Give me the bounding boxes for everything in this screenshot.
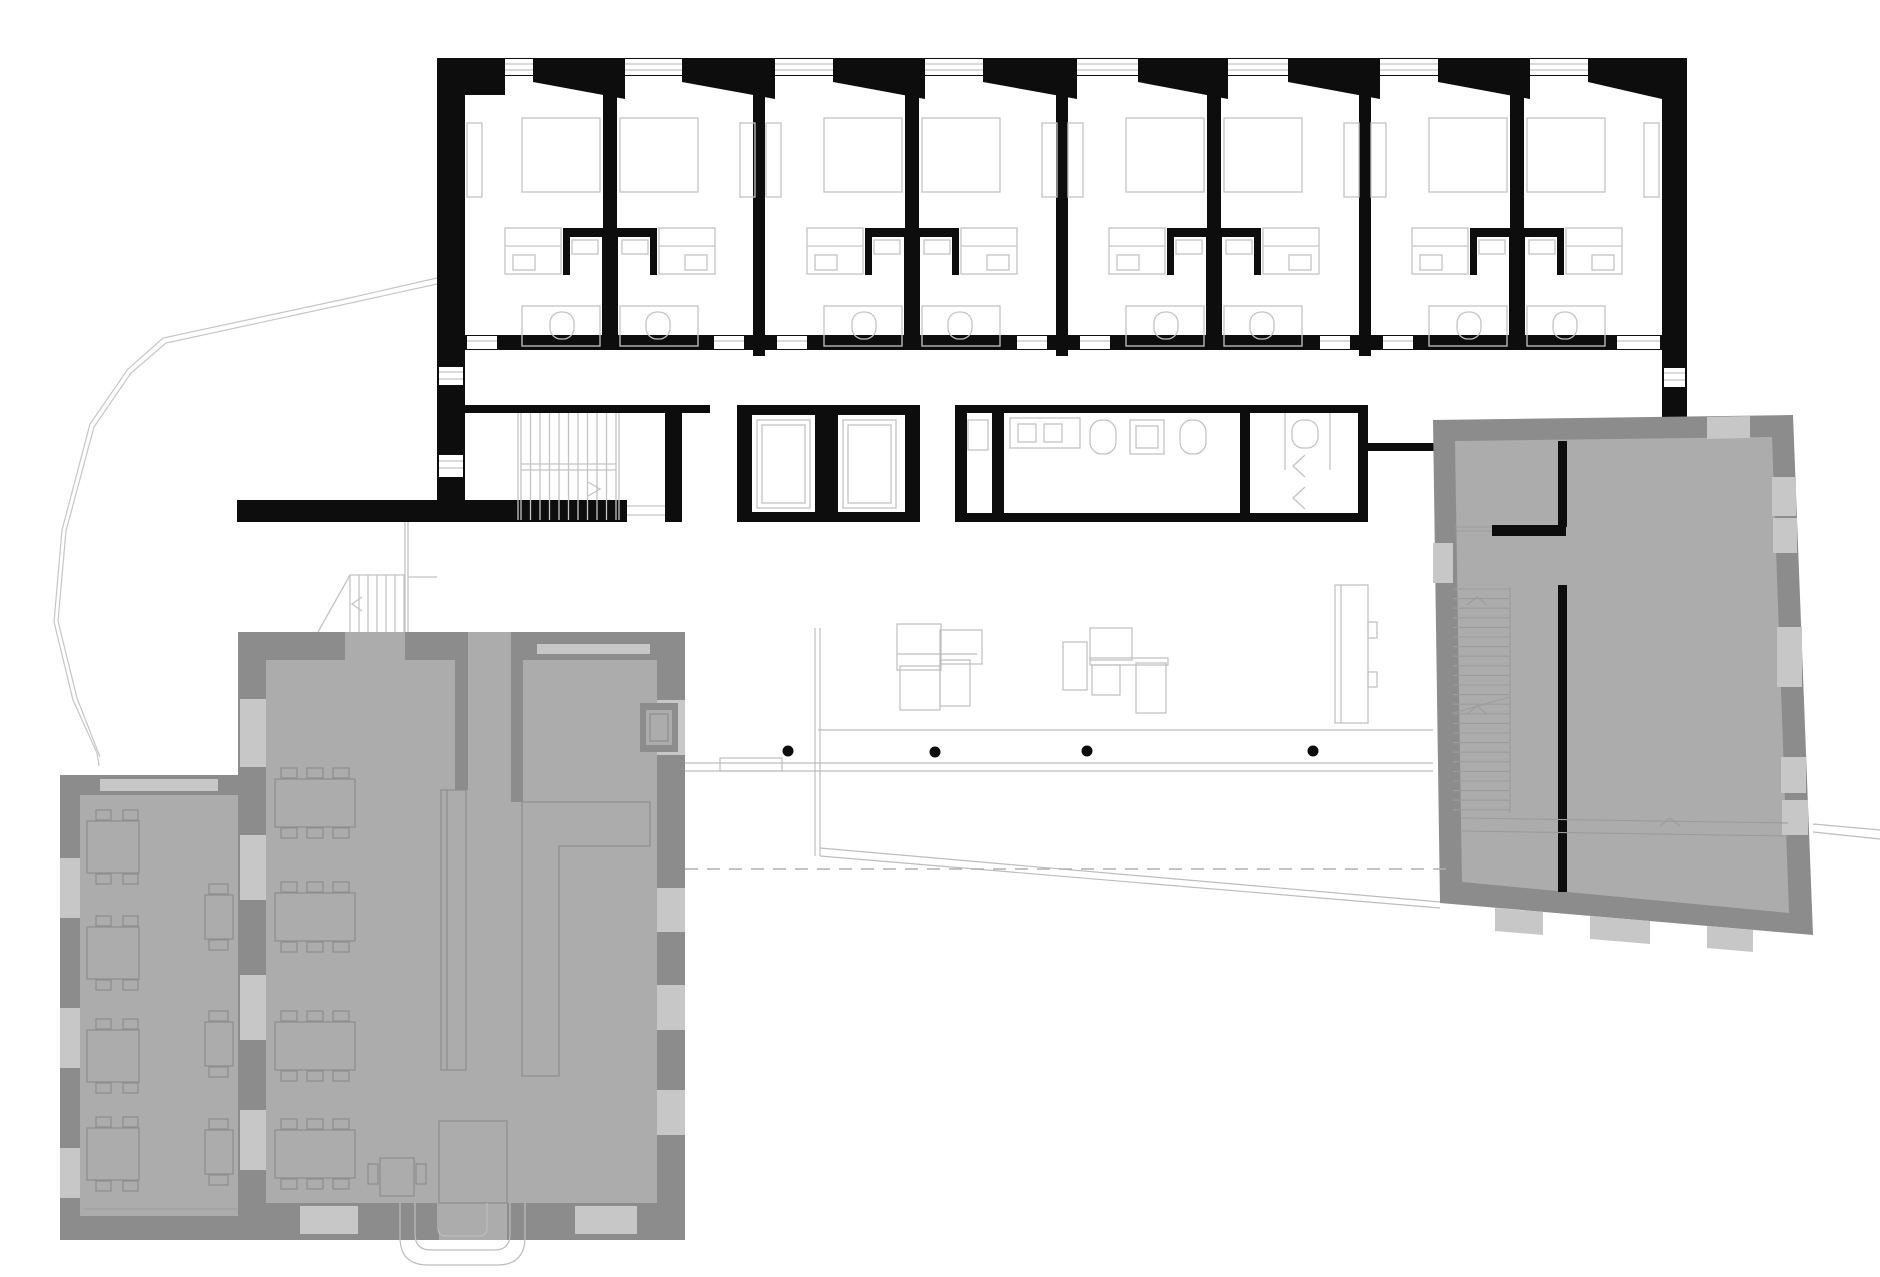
stair-direction-arrow	[588, 482, 600, 496]
service-band	[237, 405, 1435, 522]
floor-plan-canvas	[0, 0, 1880, 1277]
stove	[640, 703, 678, 752]
floor-plan-drawing	[0, 0, 1880, 1277]
lobby-desk-group-2	[1063, 628, 1168, 713]
interior-wall	[1558, 441, 1567, 527]
toilet	[1090, 420, 1116, 454]
stair-direction-arrow	[352, 597, 362, 611]
pass-opening	[468, 632, 511, 660]
room-partitions	[563, 76, 1564, 356]
stall-door-mark	[1293, 487, 1305, 509]
wing-corridor	[318, 522, 437, 632]
facade-window-right	[1664, 368, 1685, 387]
restaurant-building	[60, 632, 685, 1240]
elevator-cab-1	[757, 420, 810, 508]
interior-wall	[1492, 525, 1566, 536]
reception-counter	[1335, 585, 1377, 723]
hall-divider-wall	[511, 632, 523, 802]
stall-door-mark	[1293, 455, 1305, 477]
sanitary-block	[955, 405, 1368, 522]
shower-fixture	[1292, 420, 1318, 448]
window-lintels	[533, 76, 1662, 99]
corridor-link-wall	[1368, 443, 1435, 451]
heritage-building-east	[1433, 415, 1813, 952]
small-staircase	[318, 575, 405, 632]
entry-step	[720, 758, 782, 771]
interior-wall	[1558, 585, 1567, 892]
ramp-lines	[820, 848, 1440, 908]
elevator-cab-2	[843, 420, 896, 508]
lobby-desk-group-1	[897, 624, 982, 710]
hall-divider-wall	[455, 632, 468, 790]
toilet	[1180, 420, 1206, 454]
basin	[1130, 420, 1164, 454]
entrance-opening	[439, 1203, 507, 1240]
stair-opening	[345, 632, 405, 660]
wc-fixture	[968, 420, 988, 450]
lobby-columns	[783, 746, 1319, 758]
stair-door-opening	[627, 502, 665, 520]
elevator-block	[737, 405, 920, 522]
sink-counter	[1010, 418, 1080, 448]
